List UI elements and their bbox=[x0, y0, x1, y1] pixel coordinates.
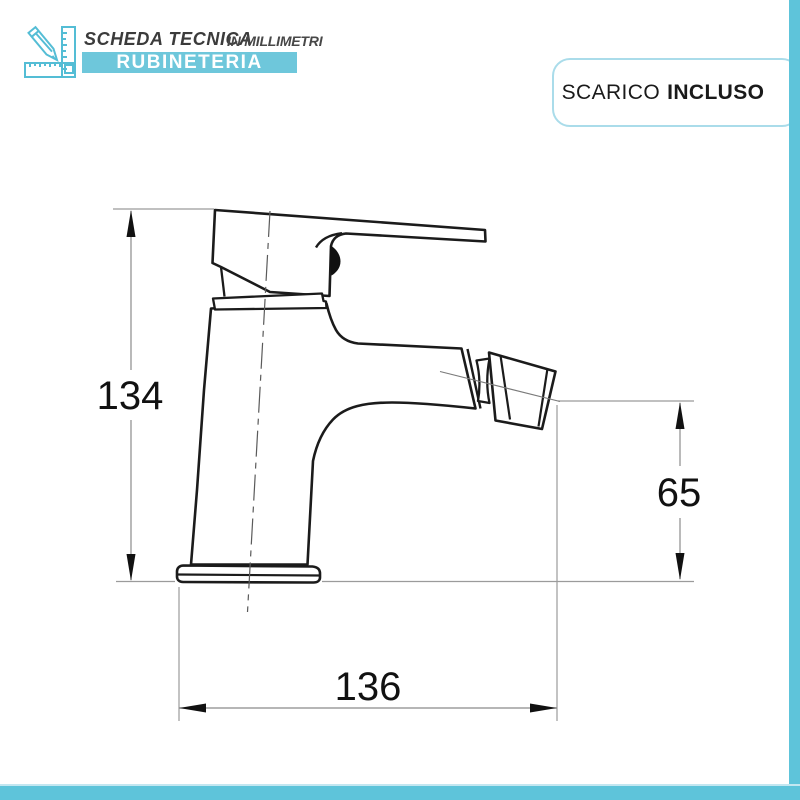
dim-label-spout-height: 65 bbox=[657, 471, 702, 515]
handle-neck-line bbox=[221, 267, 225, 297]
dim-label-height: 134 bbox=[97, 374, 164, 418]
badge-text-bold: INCLUSO bbox=[667, 81, 764, 105]
lever-pivot-detail bbox=[330, 246, 341, 276]
dim-label-depth: 136 bbox=[335, 665, 402, 709]
right-accent-strip bbox=[789, 0, 800, 800]
faucet-outline bbox=[177, 210, 556, 583]
badge-text-regular: SCARICO bbox=[562, 81, 660, 105]
faucet-collar bbox=[213, 294, 327, 310]
base-inner-line bbox=[178, 575, 320, 576]
technical-sheet-page: { "header": { "icon": "pencil-ruler-icon… bbox=[0, 0, 800, 800]
faucet-body-column bbox=[191, 304, 476, 565]
aerator-body bbox=[489, 353, 556, 430]
bottom-accent-strip bbox=[0, 784, 800, 800]
drain-included-badge: SCARICO INCLUSO bbox=[552, 58, 800, 127]
faucet-handle bbox=[213, 210, 486, 296]
